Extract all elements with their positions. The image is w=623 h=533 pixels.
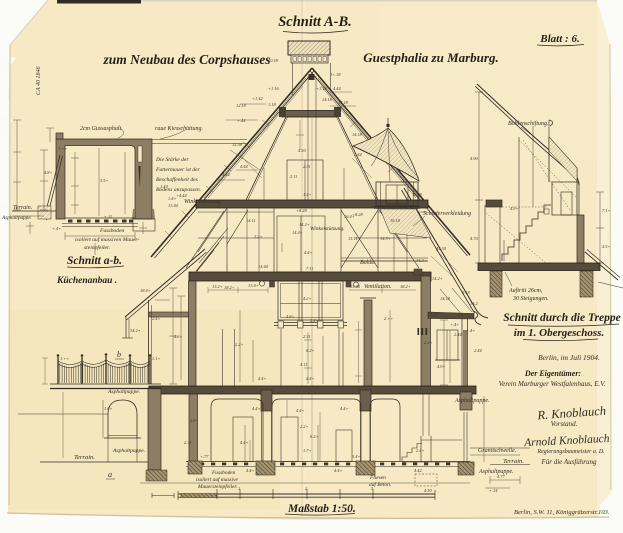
svg-text:1.18: 1.18 — [268, 102, 276, 107]
svg-text:44.34: 44.34 — [436, 246, 447, 251]
svg-text:Fussboden: Fussboden — [211, 470, 236, 476]
svg-text:4.4+: 4.4+ — [296, 408, 304, 413]
svg-text:1.++: 1.++ — [58, 146, 67, 151]
svg-text:14.2: 14.2 — [470, 301, 478, 306]
svg-text:im 1. Obergeschoss.: im 1. Obergeschoss. — [514, 327, 604, 339]
svg-text:4.2+: 4.2+ — [303, 296, 311, 301]
svg-text:Guestphalia zu Marburg.: Guestphalia zu Marburg. — [363, 50, 498, 65]
svg-text:4.5+: 4.5+ — [602, 244, 610, 249]
svg-text:+.4+: +.4+ — [52, 226, 61, 231]
svg-text:4.4+: 4.4+ — [252, 406, 260, 411]
svg-text:14.18: 14.18 — [322, 97, 333, 102]
svg-text:4.8+: 4.8+ — [286, 314, 294, 319]
svg-text:2.4+: 2.4+ — [416, 448, 424, 453]
svg-text:68.78: 68.78 — [404, 204, 415, 209]
svg-text:2.2+: 2.2+ — [254, 234, 262, 239]
svg-text:+.11: +.11 — [104, 214, 112, 219]
svg-text:14.18: 14.18 — [338, 100, 349, 105]
svg-text:3.4+: 3.4+ — [352, 454, 360, 459]
svg-text:b: b — [117, 350, 121, 359]
svg-text:Futtermauer ist der: Futtermauer ist der — [155, 167, 201, 173]
svg-text:18.2+: 18.2+ — [400, 284, 411, 289]
svg-text:Winkelstützung.: Winkelstützung. — [310, 226, 345, 232]
svg-text:a: a — [108, 470, 112, 479]
svg-text:8.2+: 8.2+ — [306, 348, 314, 353]
svg-text:7.1+: 7.1+ — [602, 208, 610, 213]
svg-text:12.38: 12.38 — [232, 142, 243, 147]
svg-text:2.4+: 2.4+ — [152, 316, 160, 321]
svg-text:4.44: 4.44 — [333, 86, 341, 91]
svg-text:Berlin, im Juli 1904.: Berlin, im Juli 1904. — [538, 353, 600, 362]
svg-text:2.4+: 2.4+ — [310, 318, 318, 323]
svg-text:4.4+: 4.4+ — [304, 250, 312, 255]
svg-text:4.77: 4.77 — [497, 474, 505, 479]
svg-text:+.14: +.14 — [489, 488, 498, 493]
svg-text:34.2+: 34.2+ — [130, 328, 141, 333]
svg-text:raue Kiesschüttung.: raue Kiesschüttung. — [155, 126, 203, 132]
svg-text:30 Steigungen.: 30 Steigungen. — [512, 296, 549, 302]
svg-text:1.44: 1.44 — [160, 184, 168, 189]
svg-text:4.4+: 4.4+ — [334, 468, 342, 473]
svg-text:4.4+: 4.4+ — [240, 440, 248, 445]
svg-text:+8.28: +8.28 — [296, 208, 307, 213]
svg-text:4.11: 4.11 — [300, 362, 307, 367]
svg-text:J+.18: J+.18 — [330, 72, 341, 77]
svg-text:Auftritt 26cm,: Auftritt 26cm, — [508, 287, 543, 294]
svg-text:13.44: 13.44 — [350, 284, 361, 289]
svg-text:+4.44: +4.44 — [176, 193, 187, 198]
svg-text:4.42: 4.42 — [414, 468, 422, 473]
svg-text:+1.16: +1.16 — [268, 86, 279, 91]
svg-text:8.2+: 8.2+ — [310, 434, 318, 439]
svg-text:14.4+: 14.4+ — [292, 230, 303, 235]
svg-text:4.44: 4.44 — [240, 164, 248, 169]
svg-text:CA 40 1846: CA 40 1846 — [35, 66, 42, 95]
svg-text:Vorstand.: Vorstand. — [551, 420, 578, 428]
svg-text:Schnitt durch die Treppe: Schnitt durch die Treppe — [503, 312, 620, 324]
svg-text:+.77: +.77 — [200, 454, 209, 459]
svg-text:14.2+: 14.2+ — [299, 222, 310, 227]
svg-text:4.4+: 4.4+ — [246, 468, 254, 473]
svg-text:15.11: 15.11 — [348, 236, 358, 241]
svg-text:4.50: 4.50 — [298, 148, 306, 153]
svg-text:13.2+: 13.2+ — [212, 284, 223, 289]
svg-text:4.90: 4.90 — [470, 156, 478, 161]
svg-text:14.11: 14.11 — [246, 218, 256, 223]
svg-text:4.50: 4.50 — [424, 488, 432, 493]
svg-text:18.98: 18.98 — [412, 192, 423, 197]
svg-text:2.44: 2.44 — [454, 332, 462, 337]
svg-text:7.11: 7.11 — [306, 266, 313, 271]
svg-text:Bohlenschiftung.: Bohlenschiftung. — [508, 120, 549, 127]
svg-text:2.44: 2.44 — [354, 152, 362, 157]
svg-text:Verein Marburger Westfalenha: Verein Marburger Westfalenhaus, E.V. — [499, 380, 606, 388]
svg-text:Asphaltpappe.: Asphaltpappe. — [478, 469, 514, 475]
svg-text:+1.42: +1.42 — [252, 96, 263, 101]
svg-text:4.70: 4.70 — [470, 236, 478, 241]
svg-text:1.4+: 1.4+ — [168, 196, 176, 201]
svg-text:2.44: 2.44 — [474, 348, 482, 353]
svg-text:Schnitt A-B.: Schnitt A-B. — [278, 14, 352, 30]
svg-text:Der Eigentümer:: Der Eigentümer: — [524, 369, 582, 378]
svg-text:2cm Gussasphalt.: 2cm Gussasphalt. — [80, 126, 123, 132]
svg-text:steinpfeiler.: steinpfeiler. — [84, 244, 110, 251]
svg-text:14.18: 14.18 — [440, 296, 451, 301]
svg-text:2.2+: 2.2+ — [235, 342, 243, 347]
svg-text:Asphaltpappe.: Asphaltpappe. — [1, 215, 32, 221]
svg-text:Mauersteinpfeiler.: Mauersteinpfeiler. — [197, 483, 238, 490]
svg-text:zum Neubau des Corpshauses: zum Neubau des Corpshauses — [103, 52, 271, 67]
svg-text:Ventilation.: Ventilation. — [364, 284, 392, 290]
svg-text:Küchenanbau .: Küchenanbau . — [56, 276, 117, 286]
svg-text:2.2+: 2.2+ — [424, 340, 432, 345]
svg-text:Berlin, S.W. 11, Königgrätzers: Berlin, S.W. 11, Königgrätzerstr.103. — [514, 509, 610, 516]
svg-text:Für die Ausführung: Für die Ausführung — [540, 458, 597, 466]
svg-text:1.1+: 1.1+ — [152, 356, 160, 361]
svg-text:+1.18: +1.18 — [316, 86, 327, 91]
svg-text:isoliert auf massiven Mauer-: isoliert auf massiven Mauer- — [75, 236, 140, 243]
svg-text:14.2+: 14.2+ — [432, 276, 443, 281]
svg-text:16.4+: 16.4+ — [344, 214, 355, 219]
svg-text:13.44: 13.44 — [168, 203, 179, 208]
svg-text:2.31: 2.31 — [184, 440, 192, 445]
svg-text:4.4+: 4.4+ — [306, 376, 314, 381]
svg-text:Schnitt a-b.: Schnitt a-b. — [67, 255, 122, 267]
svg-text:Blatt : 6.: Blatt : 6. — [539, 33, 579, 45]
svg-text:+.4+: +.4+ — [450, 322, 459, 327]
svg-text:2.11: 2.11 — [290, 174, 297, 179]
svg-text:18.4+: 18.4+ — [140, 288, 151, 293]
svg-text:14.44: 14.44 — [258, 264, 269, 269]
svg-text:Regierungsbaumeister a. D.: Regierungsbaumeister a. D. — [536, 449, 604, 455]
svg-text:2.31: 2.31 — [303, 164, 311, 169]
svg-text:4.4+: 4.4+ — [258, 376, 266, 381]
svg-text:Beschaffenheit des: Beschaffenheit des — [156, 176, 198, 183]
svg-text:0.18: 0.18 — [462, 290, 470, 295]
svg-text:10.18: 10.18 — [268, 58, 279, 63]
svg-text:Granitschwelle.: Granitschwelle. — [478, 448, 516, 454]
svg-text:Bohle.: Bohle. — [360, 260, 376, 266]
svg-text:Schieferverkleidung: Schieferverkleidung — [423, 210, 471, 217]
svg-text:Terrain.: Terrain. — [13, 205, 32, 211]
svg-text:2.8+: 2.8+ — [190, 418, 198, 423]
svg-text:14.3+: 14.3+ — [380, 236, 391, 241]
svg-text:18.2+: 18.2+ — [224, 285, 235, 290]
svg-text:1.4+: 1.4+ — [303, 192, 311, 197]
svg-text:Asphaltpappe.: Asphaltpappe. — [112, 448, 145, 454]
svg-text:Fliesen: Fliesen — [369, 475, 386, 481]
svg-text:13.4+: 13.4+ — [248, 283, 259, 288]
svg-text:1.7+: 1.7+ — [303, 448, 311, 453]
svg-text:Terrain.: Terrain. — [503, 458, 524, 465]
svg-text:Maßstab 1:50.: Maßstab 1:50. — [287, 503, 356, 515]
svg-text:14.18: 14.18 — [352, 132, 363, 137]
svg-text:2.++: 2.++ — [384, 316, 393, 321]
svg-text:2.2+: 2.2+ — [300, 424, 308, 429]
svg-text:16.18: 16.18 — [390, 218, 401, 223]
svg-text:isoliert auf massive: isoliert auf massive — [196, 476, 239, 483]
svg-text:3.5+: 3.5+ — [100, 178, 108, 183]
svg-text:4.9+: 4.9+ — [437, 364, 445, 369]
svg-text:Winkelstützung: Winkelstützung — [184, 199, 220, 205]
svg-text:14.3+: 14.3+ — [416, 258, 427, 263]
svg-text:Asphaltpappe.: Asphaltpappe. — [454, 398, 490, 404]
svg-text:Terrain.: Terrain. — [74, 454, 95, 461]
svg-text:Die Stärke der: Die Stärke der — [155, 157, 189, 163]
svg-text:4.44: 4.44 — [222, 172, 230, 177]
svg-text:+.44: +.44 — [237, 118, 246, 123]
svg-text:+.4+: +.4+ — [466, 328, 475, 333]
svg-text:1: 1 — [238, 486, 240, 491]
svg-text:4.9+: 4.9+ — [510, 206, 518, 211]
svg-text:12.18: 12.18 — [236, 103, 247, 108]
svg-text:2.4+: 2.4+ — [430, 312, 438, 317]
svg-text:1.++: 1.++ — [60, 356, 69, 361]
svg-text:1.8+: 1.8+ — [104, 406, 112, 411]
svg-text:4.4+: 4.4+ — [340, 406, 348, 411]
svg-text:Asphaltpappe.: Asphaltpappe. — [107, 389, 140, 395]
svg-text:4.6+: 4.6+ — [174, 334, 182, 339]
svg-text:2.31: 2.31 — [303, 334, 311, 339]
svg-text:4.8+: 4.8+ — [44, 170, 52, 175]
svg-text:Fussboden: Fussboden — [99, 228, 124, 234]
